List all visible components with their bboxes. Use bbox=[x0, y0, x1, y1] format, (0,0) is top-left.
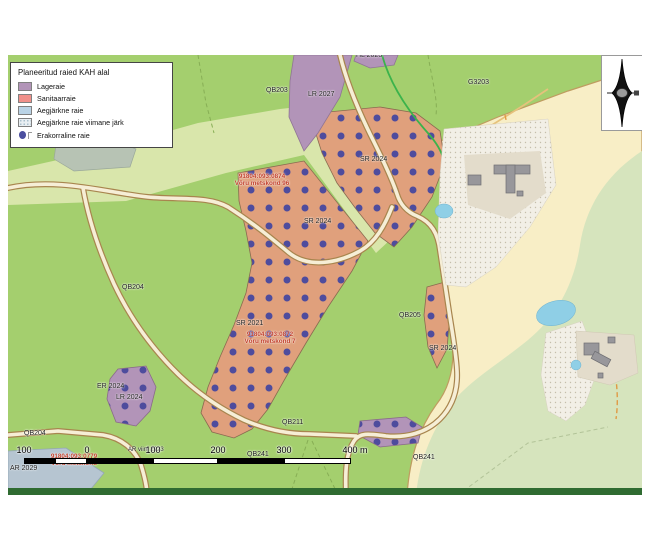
map-label: QB204 bbox=[24, 430, 46, 438]
scalebar-segment bbox=[55, 458, 87, 464]
scalebar-segment bbox=[87, 458, 153, 464]
map-label: SR 2024 bbox=[360, 156, 387, 164]
map-label: 91804:093:0874 Võru metskond 96 bbox=[235, 173, 290, 188]
pond-upper bbox=[435, 204, 453, 218]
map-label: QB241 bbox=[413, 454, 435, 462]
legend-item: Aegjärkne raie viimane järk bbox=[18, 118, 166, 127]
legend-item-label: Sanitaarraie bbox=[37, 94, 76, 103]
scalebar-segment bbox=[153, 458, 218, 464]
dark-green-strip bbox=[8, 488, 642, 495]
legend-swatch bbox=[18, 106, 32, 115]
legend-item-label: Erakorraline raie bbox=[37, 131, 90, 140]
legend-item: Lageraie bbox=[18, 82, 166, 91]
map-label: SR 2024 bbox=[429, 345, 456, 353]
legend-item: Erakorraline raie bbox=[18, 130, 166, 140]
map-label: ER 2024 bbox=[97, 383, 124, 391]
legend-item: Aegjärkne raie bbox=[18, 106, 166, 115]
legend-item-label: Lageraie bbox=[37, 82, 65, 91]
legend-swatch bbox=[18, 82, 32, 91]
map-label: SR 2021 bbox=[236, 320, 263, 328]
map-label: HL 2023 bbox=[356, 55, 382, 60]
map-label: QB204 bbox=[122, 284, 144, 292]
map-label: 91804:093:0872 Võru metskond 7 bbox=[244, 331, 295, 346]
map-label: QB205 bbox=[399, 312, 421, 320]
map-label: QB211 bbox=[282, 419, 303, 427]
map-label: LR 2027 bbox=[308, 91, 334, 99]
map-label: SR 2024 bbox=[304, 218, 331, 226]
legend-item: Sanitaarraie bbox=[18, 94, 166, 103]
map-label: G3203 bbox=[468, 79, 489, 87]
scalebar-tick: 400 m bbox=[342, 445, 367, 455]
map-label: LR 2024 bbox=[116, 394, 142, 402]
pond-small bbox=[571, 360, 581, 370]
scalebar-segment bbox=[24, 458, 55, 464]
scalebar-tick: 0 bbox=[84, 445, 89, 455]
map-label: AR 2029 bbox=[10, 465, 37, 473]
scalebar-tick: 100 bbox=[16, 445, 31, 455]
scalebar-tick: 300 bbox=[276, 445, 291, 455]
north-arrow-box bbox=[601, 55, 642, 131]
legend-swatch bbox=[18, 118, 32, 127]
scalebar-tick: 100 bbox=[145, 445, 160, 455]
legend-swatch bbox=[18, 94, 32, 103]
legend-item-label: Aegjärkne raie viimane järk bbox=[37, 118, 124, 127]
legend: Planeeritud raied KAH alal LageraieSanit… bbox=[10, 62, 173, 148]
map-export-page: HL 2023QB203LR 2027G3203SR 202491804:093… bbox=[0, 0, 650, 544]
legend-item-label: Aegjärkne raie bbox=[37, 106, 83, 115]
scalebar-segment bbox=[284, 458, 351, 464]
scalebar-segment bbox=[218, 458, 284, 464]
legend-title: Planeeritud raied KAH alal bbox=[18, 68, 166, 77]
north-arrow-icon bbox=[602, 56, 642, 130]
scalebar-tick: 200 bbox=[210, 445, 225, 455]
map-canvas: HL 2023QB203LR 2027G3203SR 202491804:093… bbox=[8, 55, 642, 495]
map-label: QB203 bbox=[266, 87, 288, 95]
legend-point-marker bbox=[18, 130, 32, 140]
legend-items: LageraieSanitaarraieAegjärkne raieAegjär… bbox=[18, 82, 166, 140]
